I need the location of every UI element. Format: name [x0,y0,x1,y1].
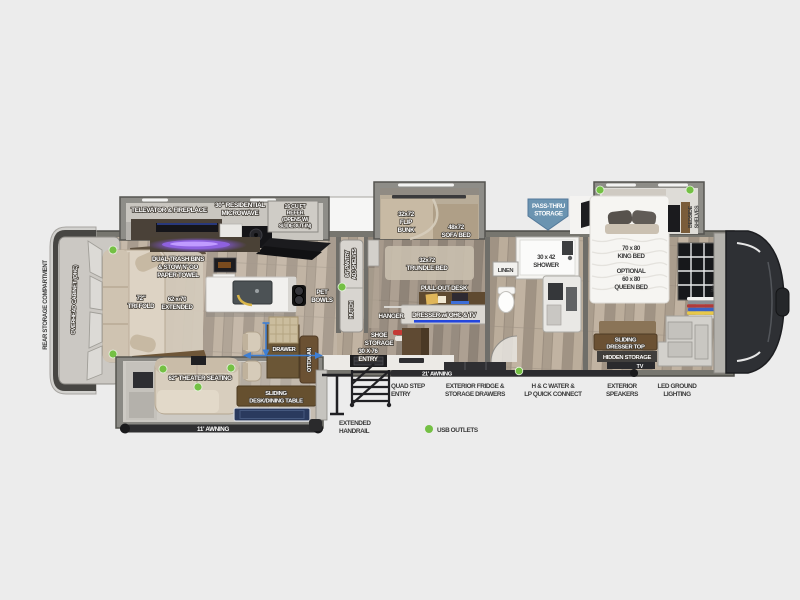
svg-text:(OPENS W/: (OPENS W/ [282,217,309,223]
svg-text:48x72: 48x72 [448,224,465,231]
svg-text:EXTENDED: EXTENDED [161,304,193,311]
svg-text:EXTENDED: EXTENDED [339,420,371,427]
svg-text:SHOWER: SHOWER [533,262,559,269]
svg-text:H & C WATER &: H & C WATER & [532,383,576,390]
svg-text:30" RESIDENTIAL: 30" RESIDENTIAL [215,202,265,209]
svg-text:EXTERIOR FRIDGE &: EXTERIOR FRIDGE & [446,383,505,390]
svg-text:32x72: 32x72 [398,211,415,218]
svg-text:ENTRY: ENTRY [358,356,378,363]
svg-text:SPEAKERS: SPEAKERS [606,391,639,398]
svg-text:SLIDING: SLIDING [265,391,287,397]
svg-text:QUEEN BED: QUEEN BED [614,284,648,291]
svg-text:TRI-FOLD: TRI-FOLD [128,303,155,310]
svg-text:OPTIONAL: OPTIONAL [617,268,646,275]
svg-text:SHELVES: SHELVES [695,205,701,228]
svg-text:62 x 70: 62 x 70 [168,296,187,303]
svg-text:USB OUTLETS: USB OUTLETS [437,427,479,434]
svg-text:62" THEATER SEATING: 62" THEATER SEATING [168,375,232,382]
svg-text:DUAL TRASH BINS: DUAL TRASH BINS [152,256,204,263]
svg-text:BUNK: BUNK [398,227,416,234]
svg-text:HUTCH: HUTCH [349,301,355,319]
svg-text:PAPER TOWEL: PAPER TOWEL [157,272,199,279]
svg-text:LED GROUND: LED GROUND [658,383,698,390]
svg-text:LP QUICK CONNECT: LP QUICK CONNECT [524,391,582,398]
svg-text:TELEVATOR & FIREPLACE: TELEVATOR & FIREPLACE [131,207,208,214]
svg-text:30 X 76: 30 X 76 [358,348,378,355]
svg-text:SLIDEOUT IN): SLIDEOUT IN) [279,224,312,230]
svg-text:LINEN: LINEN [498,268,514,274]
svg-text:REAR STORAGE COMPARTMENT: REAR STORAGE COMPARTMENT [43,260,49,350]
svg-text:HANDRAIL: HANDRAIL [339,428,370,435]
svg-text:70 x 80: 70 x 80 [622,245,641,252]
svg-text:STORAGE DRAWERS: STORAGE DRAWERS [445,391,506,398]
svg-text:72": 72" [137,295,146,302]
svg-text:OTTOMAN: OTTOMAN [307,347,313,372]
svg-text:FLIP: FLIP [400,219,412,226]
svg-text:16 CU FT: 16 CU FT [285,204,307,210]
svg-text:BEDSIDE: BEDSIDE [688,205,694,228]
svg-text:HIDDEN STORAGE: HIDDEN STORAGE [603,355,652,361]
svg-text:KING BED: KING BED [617,253,645,260]
svg-text:& STOW N' GO: & STOW N' GO [158,264,199,271]
svg-text:60 x 80: 60 x 80 [622,276,641,283]
svg-text:QUAD STEP: QUAD STEP [391,383,426,390]
svg-text:MICROWAVE: MICROWAVE [222,210,260,217]
svg-text:ADJ SHELVES: ADJ SHELVES [352,248,358,280]
svg-text:EXTERIOR: EXTERIOR [607,383,637,390]
svg-text:REFER: REFER [287,211,304,217]
svg-text:DRESSER w/ OHC & TV: DRESSER w/ OHC & TV [412,312,477,319]
svg-text:21' AWNING: 21' AWNING [422,372,453,378]
svg-text:SHOE: SHOE [371,332,388,339]
svg-text:SOFA BED: SOFA BED [442,232,472,239]
svg-text:HANGER: HANGER [378,313,404,320]
svg-text:30 x 42: 30 x 42 [537,254,556,261]
svg-text:TV: TV [637,364,644,370]
svg-text:DESK/DINING TABLE: DESK/DINING TABLE [249,399,303,405]
svg-text:STORAGE: STORAGE [534,211,563,218]
svg-text:PULL-OUT DESK: PULL-OUT DESK [421,285,468,292]
svg-text:DRESSER TOP: DRESSER TOP [606,345,645,351]
svg-text:84" PANTRY: 84" PANTRY [345,250,351,277]
svg-text:PET: PET [316,289,328,296]
svg-text:11' AWNING: 11' AWNING [197,426,229,433]
svg-text:LIGHTING: LIGHTING [663,391,691,398]
svg-text:DRAWER: DRAWER [272,347,295,353]
svg-text:32x72: 32x72 [419,257,436,264]
svg-text:BOWLS: BOWLS [311,297,333,304]
svg-text:TRUNDLE BED: TRUNDLE BED [406,265,448,272]
svg-text:STORAGE: STORAGE [365,340,394,347]
svg-text:ENTRY: ENTRY [391,391,412,398]
svg-text:SLIDING: SLIDING [615,338,637,344]
svg-text:PASS-THRU: PASS-THRU [532,203,566,210]
